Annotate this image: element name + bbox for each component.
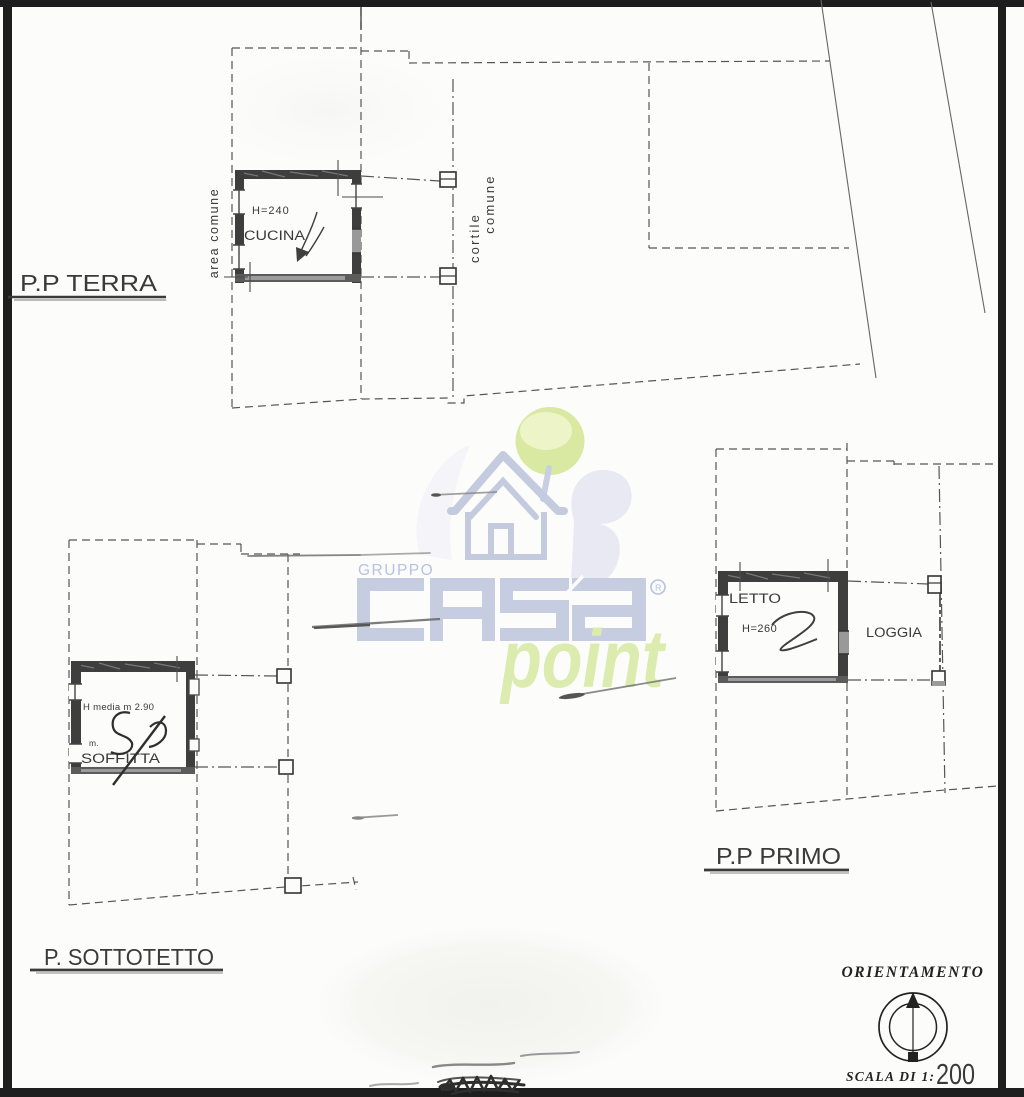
svg-text:LETTO: LETTO <box>729 591 781 606</box>
svg-text:200: 200 <box>936 1059 975 1091</box>
svg-text:R: R <box>655 583 662 593</box>
svg-text:H media m 2.90: H media m 2.90 <box>83 702 154 713</box>
svg-text:SCALA DI 1:: SCALA DI 1: <box>846 1069 935 1084</box>
svg-text:P. SOTTOTETTO: P. SOTTOTETTO <box>44 944 214 970</box>
svg-text:LOGGIA: LOGGIA <box>866 625 922 640</box>
svg-text:P.P PRIMO: P.P PRIMO <box>716 843 841 869</box>
svg-text:comune: comune <box>482 174 497 233</box>
svg-text:area comune: area comune <box>207 188 221 279</box>
svg-text:P.P TERRA: P.P TERRA <box>20 270 158 296</box>
svg-text:H=240: H=240 <box>252 205 290 217</box>
svg-text:GRUPPO: GRUPPO <box>358 562 434 579</box>
svg-text:CUCINA: CUCINA <box>244 228 305 243</box>
svg-text:cortile: cortile <box>467 213 482 263</box>
svg-text:m.: m. <box>89 738 98 748</box>
svg-text:ORIENTAMENTO: ORIENTAMENTO <box>842 964 985 981</box>
svg-text:point: point <box>499 614 667 705</box>
